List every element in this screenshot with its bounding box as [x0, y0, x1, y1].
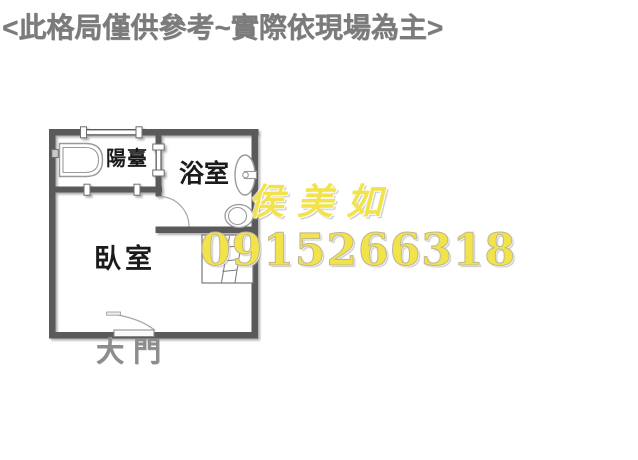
window-tick-icon — [153, 170, 164, 176]
door-swing-arc-icon — [159, 197, 189, 227]
window-balcony-bathroom — [157, 150, 161, 170]
washing-machine-icon — [52, 144, 103, 177]
window-tick-icon — [153, 144, 164, 150]
wall-balcony-bottom — [55, 187, 162, 193]
entrance-door-label: 大門 — [96, 338, 170, 366]
wall-left — [49, 129, 56, 339]
entrance-door-icon — [107, 312, 156, 337]
balcony-room-label: 陽臺 — [106, 149, 148, 169]
window-tick-icon — [84, 184, 90, 195]
door-swing-arc-icon — [113, 314, 156, 331]
window-top — [86, 130, 136, 134]
watermark-agent-name: 侯美如 — [248, 184, 395, 220]
bedroom-room-label: 臥室 — [94, 246, 156, 273]
floorplan-page: <此格局僅供參考~實際依現場為主> — [0, 0, 638, 460]
window-tick-icon — [81, 127, 87, 138]
bathroom-room-label: 浴室 — [179, 162, 229, 187]
window-tick-icon — [134, 184, 140, 195]
watermark-phone-number: 0915266318 — [200, 229, 516, 273]
window-tick-icon — [136, 127, 142, 138]
